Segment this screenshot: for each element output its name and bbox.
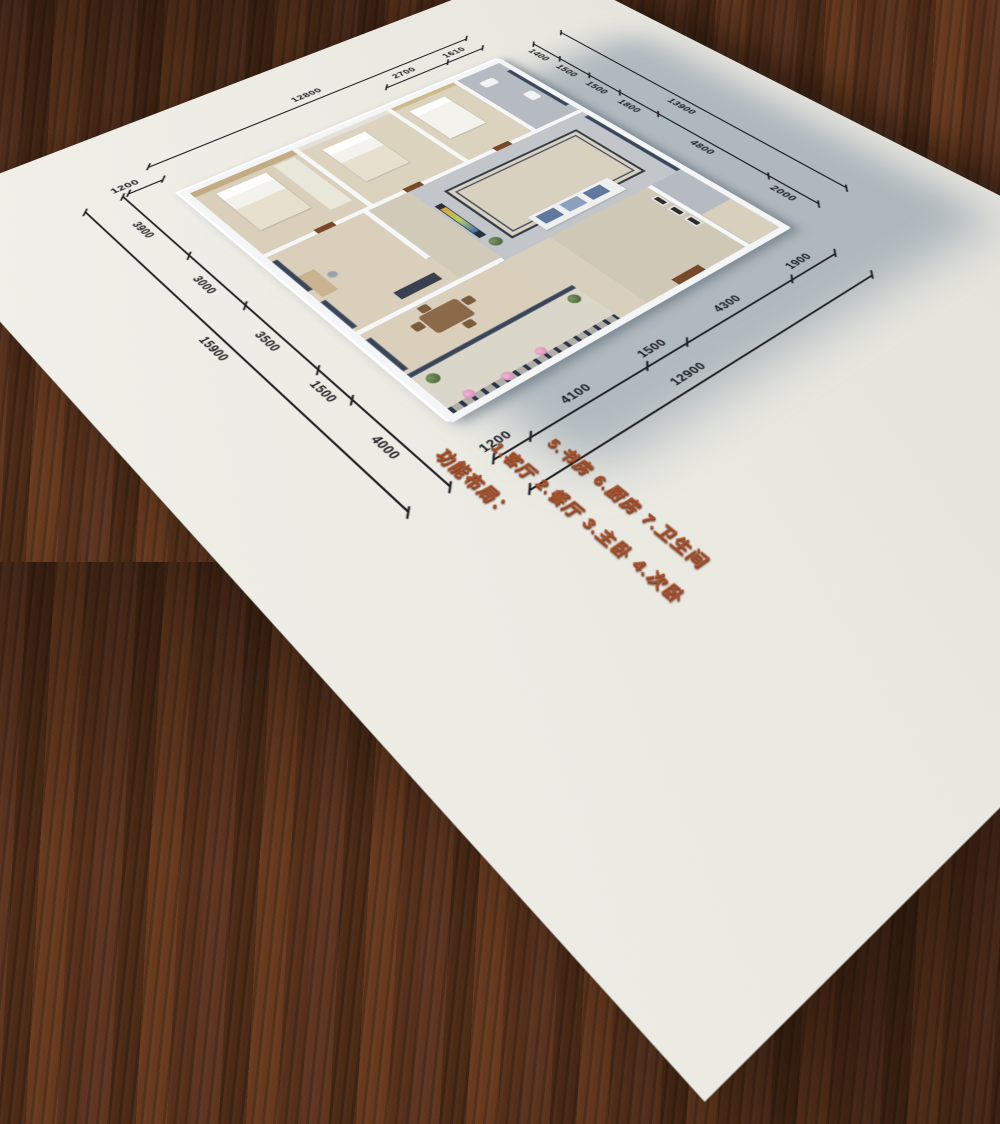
dim-tick (686, 337, 689, 347)
dim-tick (619, 90, 621, 96)
desk-surface: { "scene": { "description": "3D isometri… (0, 0, 1000, 562)
drawing-plane: 12800 2700 1610 1200 1400 1500 1500 1800… (0, 0, 1000, 1124)
dim-tick (646, 361, 648, 371)
dim-tick (588, 73, 590, 79)
dim-tick (657, 111, 659, 117)
scene: 12800 2700 1610 1200 1400 1500 1500 1800… (0, 0, 1000, 562)
